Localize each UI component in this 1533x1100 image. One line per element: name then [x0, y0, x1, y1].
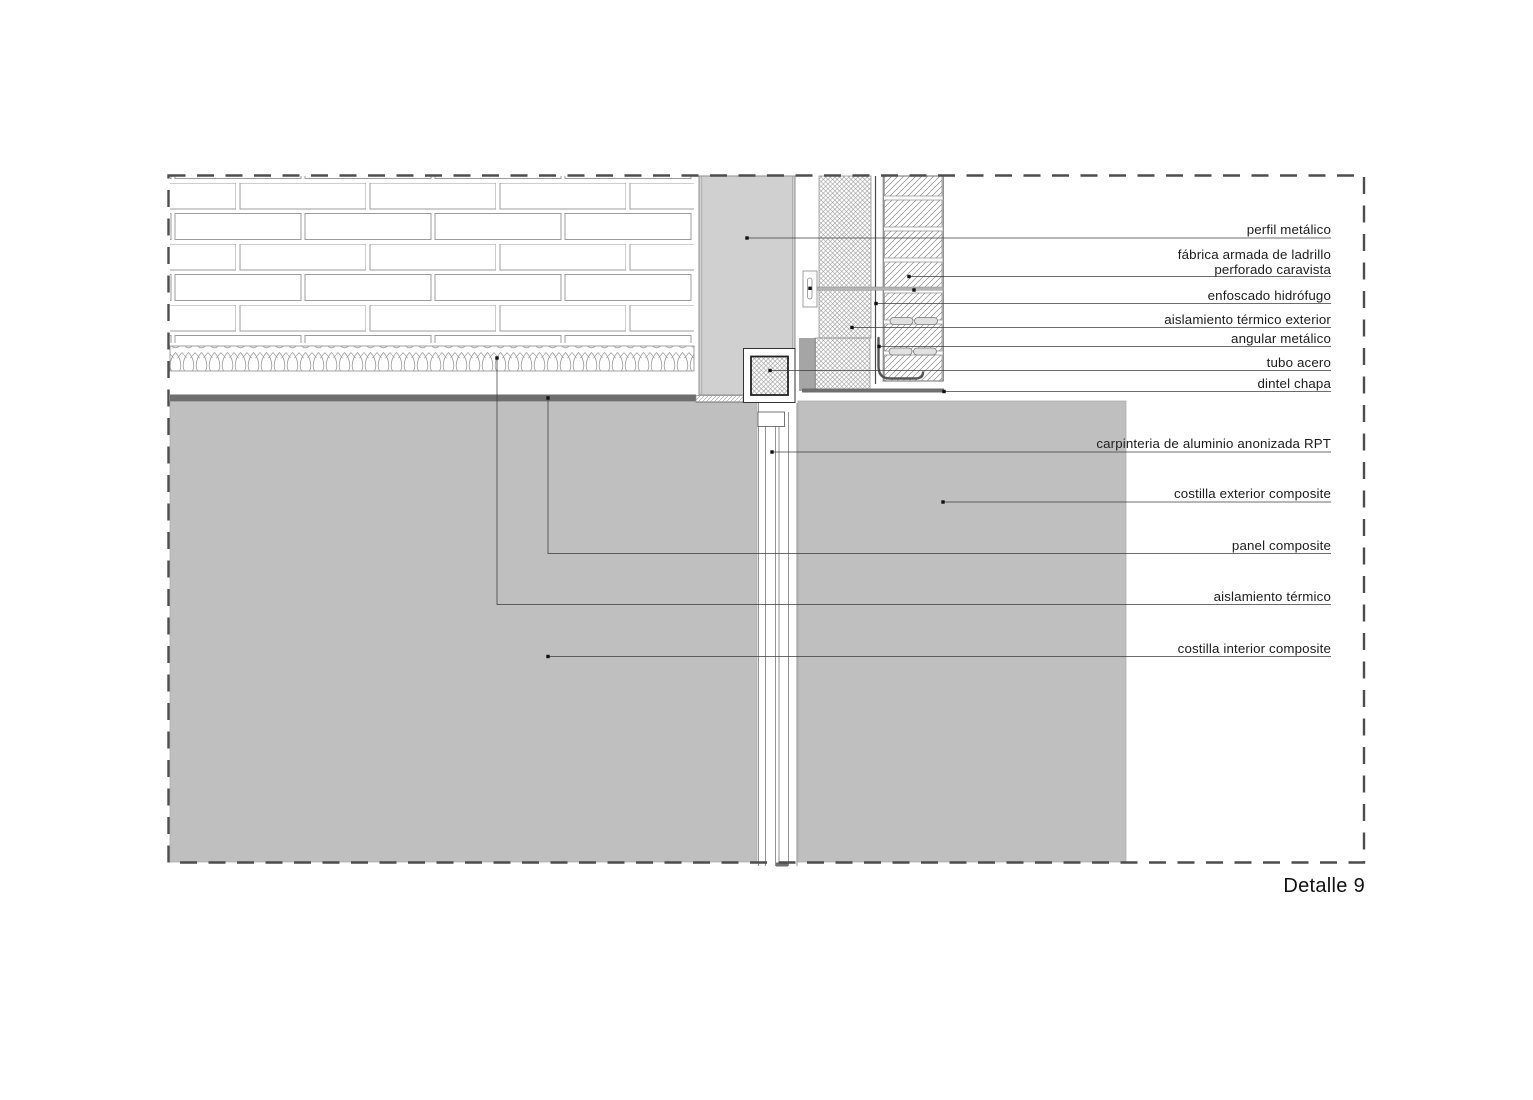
callout-fabrica-armada: fábrica armada de ladrilloperforado cara…	[1178, 247, 1331, 277]
callout-panel-composite: panel composite	[1232, 538, 1331, 553]
callout-costilla-exterior: costilla exterior composite	[1174, 486, 1331, 501]
callout-carpinteria-aluminio: carpinteria de aluminio anonizada RPT	[1096, 436, 1331, 451]
interior-slab-left	[170, 402, 757, 863]
steel-tube-section	[744, 349, 796, 403]
architectural-detail-sheet: perfil metálico fábrica armada de ladril…	[0, 0, 1533, 1100]
lintel-backing-block	[799, 338, 816, 391]
callout-tubo-acero: tubo acero	[1267, 355, 1331, 370]
panel-composite-plate	[170, 395, 696, 402]
callout-costilla-interior: costilla interior composite	[1178, 641, 1331, 656]
detail-title: Detalle 9	[1283, 875, 1365, 898]
brick-wall-plan	[170, 176, 694, 343]
tie-anchor	[803, 271, 817, 307]
lintel-plate	[802, 389, 944, 393]
callout-dintel-chapa: dintel chapa	[1257, 376, 1331, 391]
callout-enfoscado-hidrofugo: enfoscado hidrófugo	[1208, 288, 1331, 303]
interior-slab-right	[798, 401, 1126, 862]
callout-aislamiento-termico: aislamiento térmico	[1214, 589, 1331, 604]
mortar-bed-hatch	[696, 396, 743, 403]
window-mullion	[758, 403, 797, 867]
callout-angular-metalico: angular metálico	[1231, 331, 1331, 346]
callout-aislamiento-exterior: aislamiento térmico exterior	[1164, 312, 1331, 327]
callout-perfil-metalico: perfil metálico	[1247, 222, 1331, 237]
batt-insulation-strip	[170, 346, 694, 371]
exterior-insulation-column	[815, 176, 871, 390]
